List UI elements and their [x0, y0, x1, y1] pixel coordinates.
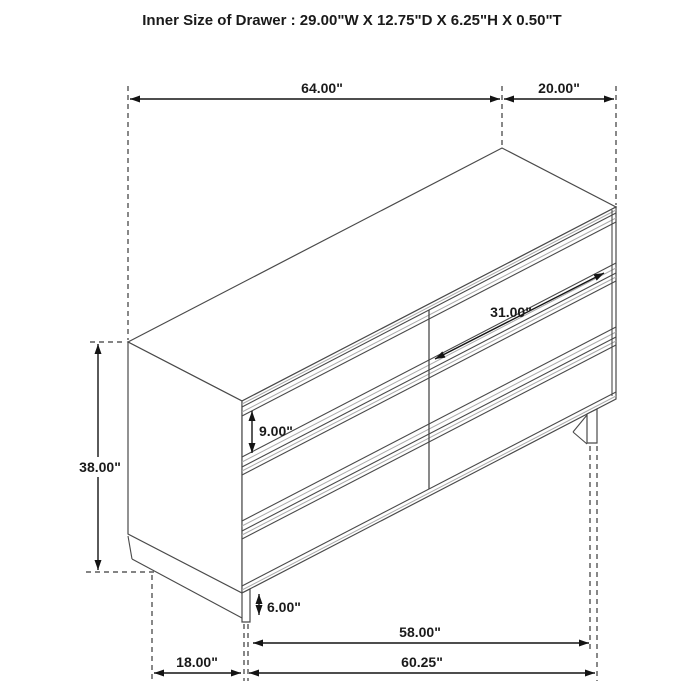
front-left-leg	[242, 589, 250, 622]
dimension-front-span: 58.00"	[253, 624, 589, 643]
dim-label-base-width: 60.25"	[401, 654, 443, 670]
dresser-figure	[128, 148, 616, 622]
dim-label-leg-height: 6.00"	[267, 599, 301, 615]
diagram-title: Inner Size of Drawer : 29.00"W X 12.75"D…	[142, 12, 561, 29]
dimension-overall-depth: 20.00"	[504, 80, 614, 99]
dim-label-drawer-width: 31.00"	[490, 304, 532, 320]
diagram-page: Inner Size of Drawer : 29.00"W X 12.75"D…	[0, 0, 700, 700]
dimension-overall-height: 38.00"	[79, 344, 121, 570]
dim-label-drawer-height: 9.00"	[259, 423, 293, 439]
dimension-base-depth: 18.00"	[154, 654, 241, 673]
dimension-base-width: 60.25"	[249, 654, 595, 673]
dresser-dimension-diagram: Inner Size of Drawer : 29.00"W X 12.75"D…	[0, 0, 700, 700]
dim-label-base-depth: 18.00"	[176, 654, 218, 670]
dimension-overall-width: 64.00"	[130, 80, 500, 99]
dim-label-overall-depth: 20.00"	[538, 80, 580, 96]
dimension-leg-height: 6.00"	[259, 594, 301, 615]
dim-label-overall-width: 64.00"	[301, 80, 343, 96]
dim-label-overall-height: 38.00"	[79, 459, 121, 475]
dim-label-front-span: 58.00"	[399, 624, 441, 640]
